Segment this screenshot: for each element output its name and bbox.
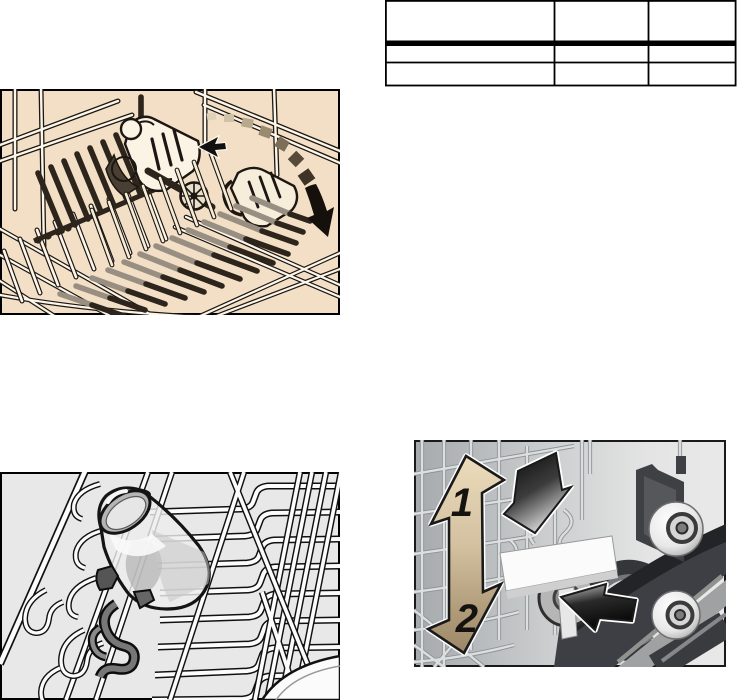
svg-text:1: 1 (451, 481, 473, 525)
svg-text:2: 2 (455, 597, 478, 641)
